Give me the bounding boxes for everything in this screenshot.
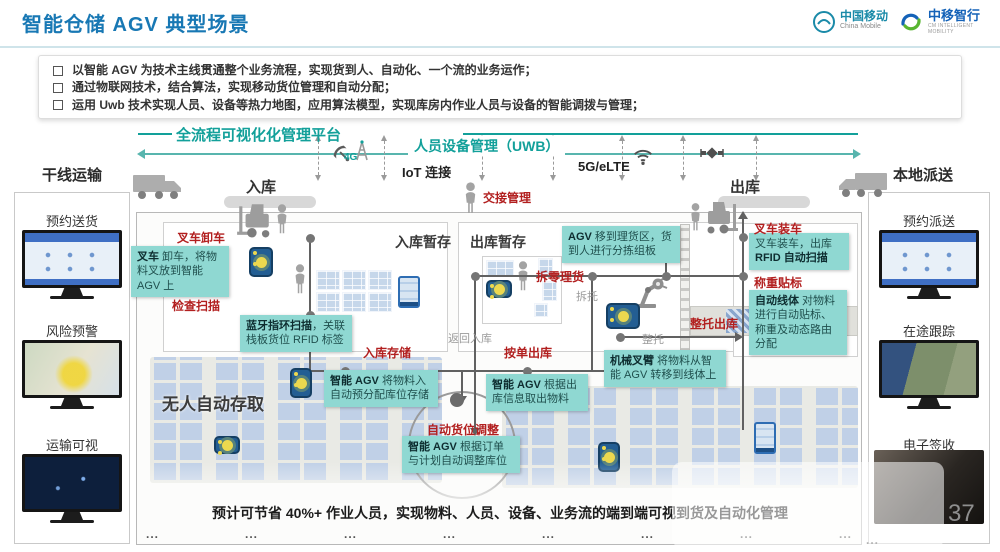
callout-bold: 智能 AGV [330, 375, 379, 387]
callout-bold: 机械叉臂 [610, 355, 654, 367]
flow-node [662, 272, 671, 281]
flow-node [616, 333, 625, 342]
risk-map-screenshot [25, 343, 119, 395]
pallet-outbound-label: 整托出库 [690, 315, 738, 332]
callout-rfid-scan: 叉车装车，出库 RFID 自动扫描 [749, 233, 849, 270]
watermark [672, 462, 944, 548]
forklift-outbound-icon [702, 198, 742, 234]
worker-icon [292, 262, 308, 296]
callout-robot-arm: 机械叉臂 将物料从智能 AGV 转移到线体上 [604, 350, 726, 387]
bullet-2-text: 通过物联网技术，结合算法，实现移动货位管理和自动分配； [72, 79, 396, 96]
china-mobile-logo-icon [812, 10, 836, 34]
item-label: 预约派送 [869, 211, 989, 230]
forklift-unload-label: 叉车卸车 [177, 229, 225, 246]
slot-adjust-label: 自动货位调整 [427, 421, 499, 438]
callout-bold: 叉车 [137, 251, 159, 263]
list-item: 运输可视 [15, 435, 129, 523]
key-points-card: 以智能 AGV 为技术主线贯通整个业务流程，实现货到人、自动化、一个流的业务运作… [38, 55, 962, 119]
item-label: 在途跟踪 [869, 321, 989, 340]
flow-line [475, 275, 745, 277]
monitor-icon [879, 230, 979, 288]
callout-text: 叉车装车，出库 [755, 238, 832, 250]
item-label: 预约送货 [15, 211, 129, 230]
slide: 智能仓储 AGV 典型场景 中国移动 China Mobile 中移智行 CM … [0, 0, 1000, 552]
china-mobile-name: 中国移动 [840, 10, 888, 23]
flow-node [306, 234, 315, 243]
cmi-name: 中移智行 [928, 9, 1000, 23]
item-label: 运输可视 [15, 435, 129, 454]
dashed-link-icon [384, 141, 385, 175]
callout-bold: RFID 自动扫描 [755, 252, 828, 264]
list-item: 预约派送 [869, 211, 989, 299]
pallet-icon [342, 292, 366, 312]
5g-elte-label: 5G/eLTE [578, 159, 630, 174]
worker-icon [688, 202, 703, 232]
outbound-label: 出库 [730, 176, 760, 197]
list-item: 风险预警 [15, 321, 129, 409]
handover-person-icon [462, 182, 479, 214]
list-item: 预约送货 [15, 211, 129, 299]
4g-label: 4G [344, 152, 357, 163]
flow-node [739, 233, 748, 242]
dashed-link-icon [318, 141, 319, 175]
arrow-right-icon [735, 332, 743, 342]
list-item: 在途跟踪 [869, 321, 989, 409]
satellite-icon [700, 141, 724, 165]
callout-bold: AGV [568, 231, 592, 243]
bullet-3-text: 运用 Uwb 技术实现人员、设备等热力地图，应用算法模型，实现库房内作业人员与设… [72, 97, 644, 114]
flow-node [588, 272, 597, 281]
agv-icon [290, 368, 312, 398]
satellite-map-screenshot [882, 343, 976, 395]
monitor-base [50, 296, 94, 299]
page-title: 智能仓储 AGV 典型场景 [22, 8, 249, 37]
truck-inbound-icon [132, 172, 182, 200]
trunk-transport-title: 干线运输 [42, 164, 102, 185]
agv-icon [606, 303, 640, 329]
auto-storage-label: 无人自动存取 [162, 390, 264, 415]
return-inbound-label: 返回入库 [448, 330, 492, 346]
check-scan-label: 检查扫描 [172, 297, 220, 314]
pallet-icon [486, 260, 514, 276]
inbound-staging-label: 入库暂存 [395, 232, 451, 252]
agv-icon [249, 247, 273, 277]
checkbox-icon [53, 66, 63, 76]
outbound-staging-label: 出库暂存 [470, 232, 526, 252]
handover-label: 交接管理 [483, 189, 531, 206]
callout-bold: 自动线体 [755, 295, 799, 307]
china-mobile-logo: 中国移动 China Mobile [840, 10, 888, 30]
monitor-icon [22, 340, 122, 398]
bullet-2: 通过物联网技术，结合算法，实现移动货位管理和自动分配； [53, 79, 947, 96]
monitor-base [907, 406, 951, 409]
callout-bluetooth-scan: 蓝牙指环扫描，关联栈板货位 RFID 标签 [240, 315, 352, 352]
monitor-base [50, 406, 94, 409]
uwb-management-label: 人员设备管理（UWB） [408, 136, 565, 156]
callout-agv-adjust: 智能 AGV 根据订单与计划自动调整库位 [402, 436, 520, 473]
monitor-icon [879, 340, 979, 398]
pallet-icon [316, 292, 340, 312]
monitor-base [907, 296, 951, 299]
checkbox-icon [53, 83, 63, 93]
callout-agv-pick: AGV 移到理货区，货到人进行分拣组板 [562, 226, 680, 263]
truck-outbound-icon [838, 170, 888, 198]
agv-icon [486, 280, 512, 298]
item-label: 风险预警 [15, 321, 129, 340]
monitor-stand [61, 398, 83, 406]
inbound-label: 入库 [246, 176, 276, 197]
dark-map-screenshot [25, 457, 119, 509]
inbound-store-label: 入库存储 [363, 344, 411, 361]
callout-forklift-unload: 叉车 卸车，将物料叉放到智能 AGV 上 [131, 246, 229, 297]
agv-icon [214, 436, 240, 454]
cm-intelligent-mobility-logo-icon [898, 10, 924, 34]
monitor-base [50, 520, 94, 523]
cmi-sub: CM INTELLIGENT MOBILITY [928, 23, 1000, 35]
pallet-icon [368, 270, 392, 290]
callout-bold: 智能 AGV [492, 379, 541, 391]
callout-agv-store: 智能 AGV 将物料入自动预分配库位存储 [324, 370, 438, 407]
piece-picking-label: 拆零理货 [536, 268, 584, 285]
ellipsis: ... [344, 527, 357, 541]
cm-intelligent-mobility-logo: 中移智行 CM INTELLIGENT MOBILITY [928, 9, 1000, 35]
ellipsis: ... [641, 527, 654, 541]
worker-icon [274, 202, 290, 236]
cart-icon [398, 276, 420, 308]
ellipsis: ... [443, 527, 456, 541]
arrow-right-icon [853, 149, 861, 159]
weigh-label-label: 称重贴标 [754, 274, 802, 291]
monitor-stand [61, 512, 83, 520]
platform-line-right [463, 133, 858, 135]
monitor-stand [918, 288, 940, 296]
callout-agv-retrieve: 智能 AGV 根据出库信息取出物料 [486, 374, 588, 411]
flow-line [742, 218, 744, 430]
callout-bold: 智能 AGV [408, 441, 457, 453]
monitor-stand [61, 288, 83, 296]
trunk-transport-panel: 预约送货 风险预警 运输可视 [14, 192, 130, 544]
callout-bold: 蓝牙指环扫描 [246, 320, 312, 332]
monitor-icon [22, 230, 122, 288]
forklift-inbound-icon [232, 200, 276, 238]
flow-node [739, 272, 748, 281]
cart-icon [754, 422, 776, 454]
bullet-1: 以智能 AGV 为技术主线贯通整个业务流程，实现货到人、自动化、一个流的业务运作… [53, 62, 947, 79]
bullet-1-text: 以智能 AGV 为技术主线贯通整个业务流程，实现货到人、自动化、一个流的业务运作… [72, 62, 537, 79]
callout-auto-line: 自动线体 对物料进行自动贴标、称重及动态路由分配 [749, 290, 847, 355]
ellipsis: ... [542, 527, 555, 541]
flow-line [309, 238, 311, 372]
pallet-icon [342, 270, 366, 290]
header-divider [0, 46, 1000, 48]
flow-line [474, 277, 476, 429]
dashed-link-icon [756, 141, 757, 175]
depalletize-label: 拆托 [576, 288, 598, 304]
china-mobile-sub: China Mobile [840, 23, 888, 30]
iot-label: IoT 连接 [402, 162, 451, 181]
pallet-icon [368, 292, 392, 312]
pallet-icon [316, 270, 340, 290]
checkbox-icon [53, 100, 63, 110]
dashed-link-icon [683, 141, 684, 175]
monitor-icon [22, 454, 122, 512]
platform-line-left [138, 133, 172, 135]
arrow-up-icon [738, 211, 748, 219]
wifi-icon [632, 145, 654, 167]
platform-title: 全流程可视化化管理平台 [176, 124, 341, 145]
flow-node [471, 272, 480, 281]
page-number: 37 [948, 500, 975, 528]
ellipsis: ... [146, 527, 159, 541]
app-screenshot [25, 233, 119, 285]
palletize-label: 整托 [642, 331, 664, 347]
local-delivery-title: 本地派送 [893, 164, 953, 185]
order-outbound-label: 按单出库 [504, 344, 552, 361]
flow-node-central [450, 393, 464, 407]
pallet-icon [534, 303, 548, 317]
bullet-3: 运用 Uwb 技术实现人员、设备等热力地图，应用算法模型，实现库房内作业人员与设… [53, 97, 947, 114]
app-screenshot [882, 233, 976, 285]
flow-line [620, 336, 736, 338]
monitor-stand [918, 398, 940, 406]
ellipsis: ... [245, 527, 258, 541]
arrow-left-icon [137, 149, 145, 159]
forklift-load-label: 叉车装车 [754, 220, 802, 237]
